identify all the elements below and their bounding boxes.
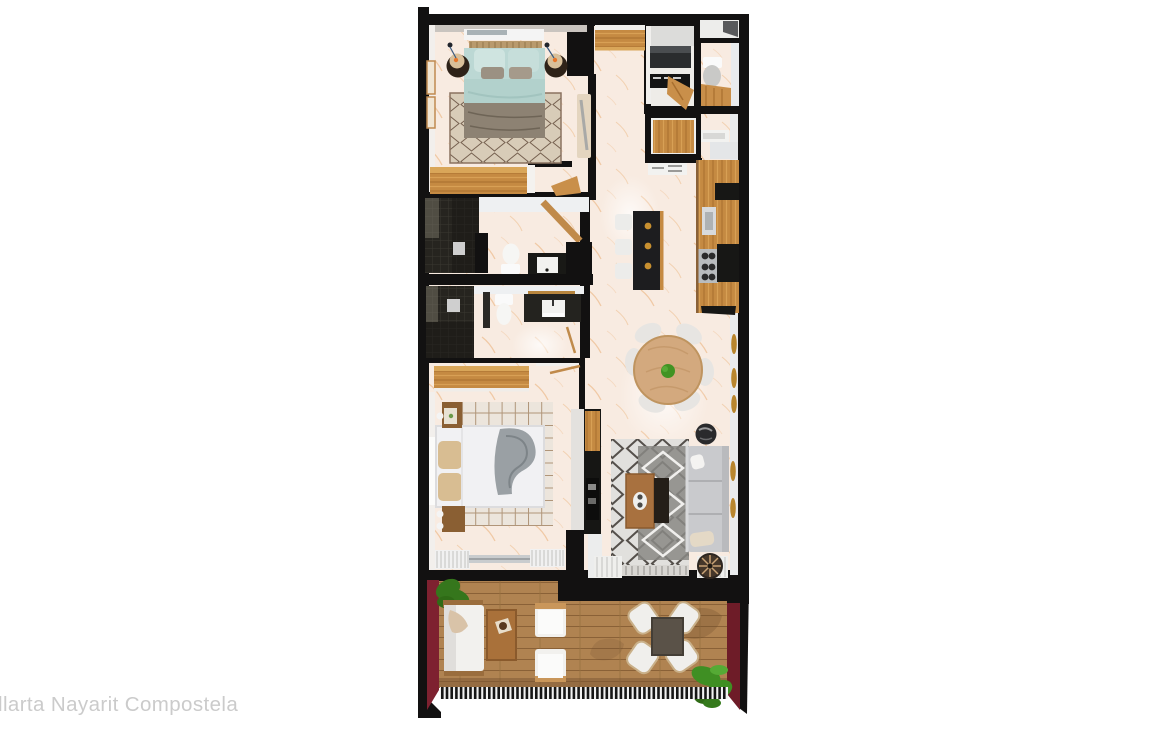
svg-text:llarta Nayarit Compostela: llarta Nayarit Compostela [0,693,238,716]
